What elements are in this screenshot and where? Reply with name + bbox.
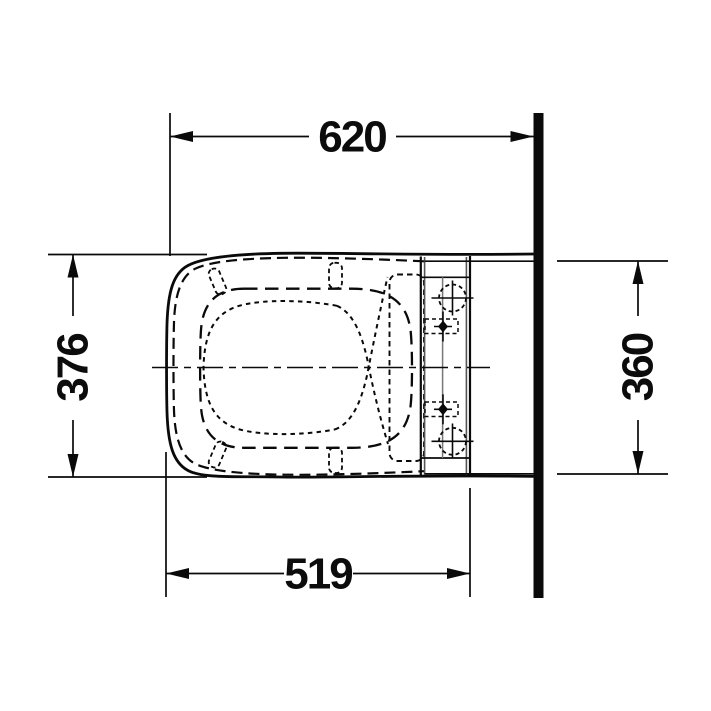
toilet-plan-drawing: 620 376 360 519 [0, 0, 711, 711]
drawing-background [0, 0, 711, 711]
dim-label-376: 376 [49, 334, 98, 402]
wall-section-line [534, 113, 544, 598]
dim-label-519: 519 [284, 550, 352, 599]
dim-label-360: 360 [614, 333, 663, 401]
technical-drawing-canvas: 620 376 360 519 [0, 0, 711, 711]
dim-label-620: 620 [318, 113, 386, 162]
